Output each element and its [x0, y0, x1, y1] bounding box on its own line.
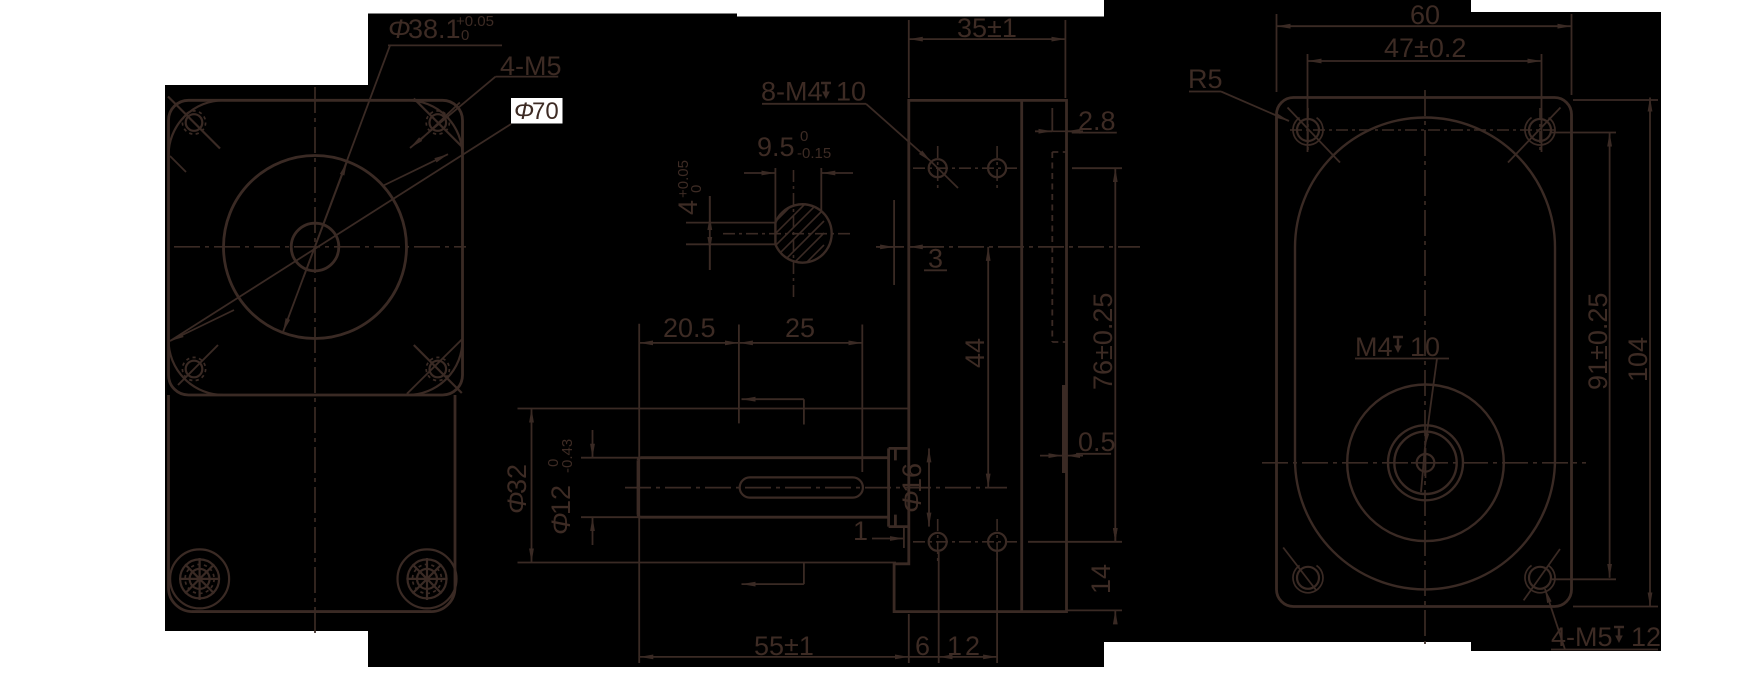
svg-text:20.5: 20.5 — [663, 313, 716, 343]
svg-text:12: 12 — [546, 485, 576, 515]
svg-text:32: 32 — [502, 464, 532, 494]
svg-text:25: 25 — [785, 313, 815, 343]
svg-text:91±0.25: 91±0.25 — [1583, 293, 1613, 390]
svg-text:16: 16 — [897, 463, 927, 493]
svg-text:47±0.2: 47±0.2 — [1384, 33, 1466, 63]
svg-text:35±1: 35±1 — [957, 13, 1017, 43]
svg-text:70: 70 — [532, 98, 559, 125]
svg-text:6: 6 — [915, 631, 930, 661]
svg-text:12: 12 — [1631, 622, 1661, 652]
svg-text:104: 104 — [1623, 337, 1653, 382]
svg-text:0: 0 — [688, 185, 705, 193]
svg-text:55±1: 55±1 — [754, 631, 814, 661]
svg-text:14: 14 — [1086, 564, 1116, 594]
svg-text:-0.43: -0.43 — [559, 439, 576, 473]
svg-text:10: 10 — [836, 77, 866, 107]
svg-text:-0.15: -0.15 — [797, 145, 831, 162]
svg-text:9.5: 9.5 — [757, 132, 795, 162]
svg-text:4: 4 — [673, 200, 703, 215]
svg-text:2.8: 2.8 — [1078, 106, 1116, 136]
svg-text:12: 12 — [947, 631, 983, 661]
svg-text:1: 1 — [853, 516, 868, 546]
svg-text:0.5: 0.5 — [1078, 427, 1116, 457]
svg-text:60: 60 — [1410, 0, 1440, 30]
svg-text:44: 44 — [960, 338, 990, 368]
svg-text:0: 0 — [800, 128, 808, 145]
svg-text:3: 3 — [928, 244, 943, 274]
svg-text:R5: R5 — [1188, 64, 1223, 94]
svg-text:38.1: 38.1 — [408, 14, 461, 44]
svg-text:0: 0 — [461, 27, 469, 44]
svg-text:8-M4: 8-M4 — [761, 77, 823, 107]
svg-text:10: 10 — [1410, 332, 1440, 362]
svg-text:76±0.25: 76±0.25 — [1088, 293, 1118, 390]
svg-text:M4: M4 — [1355, 332, 1393, 362]
